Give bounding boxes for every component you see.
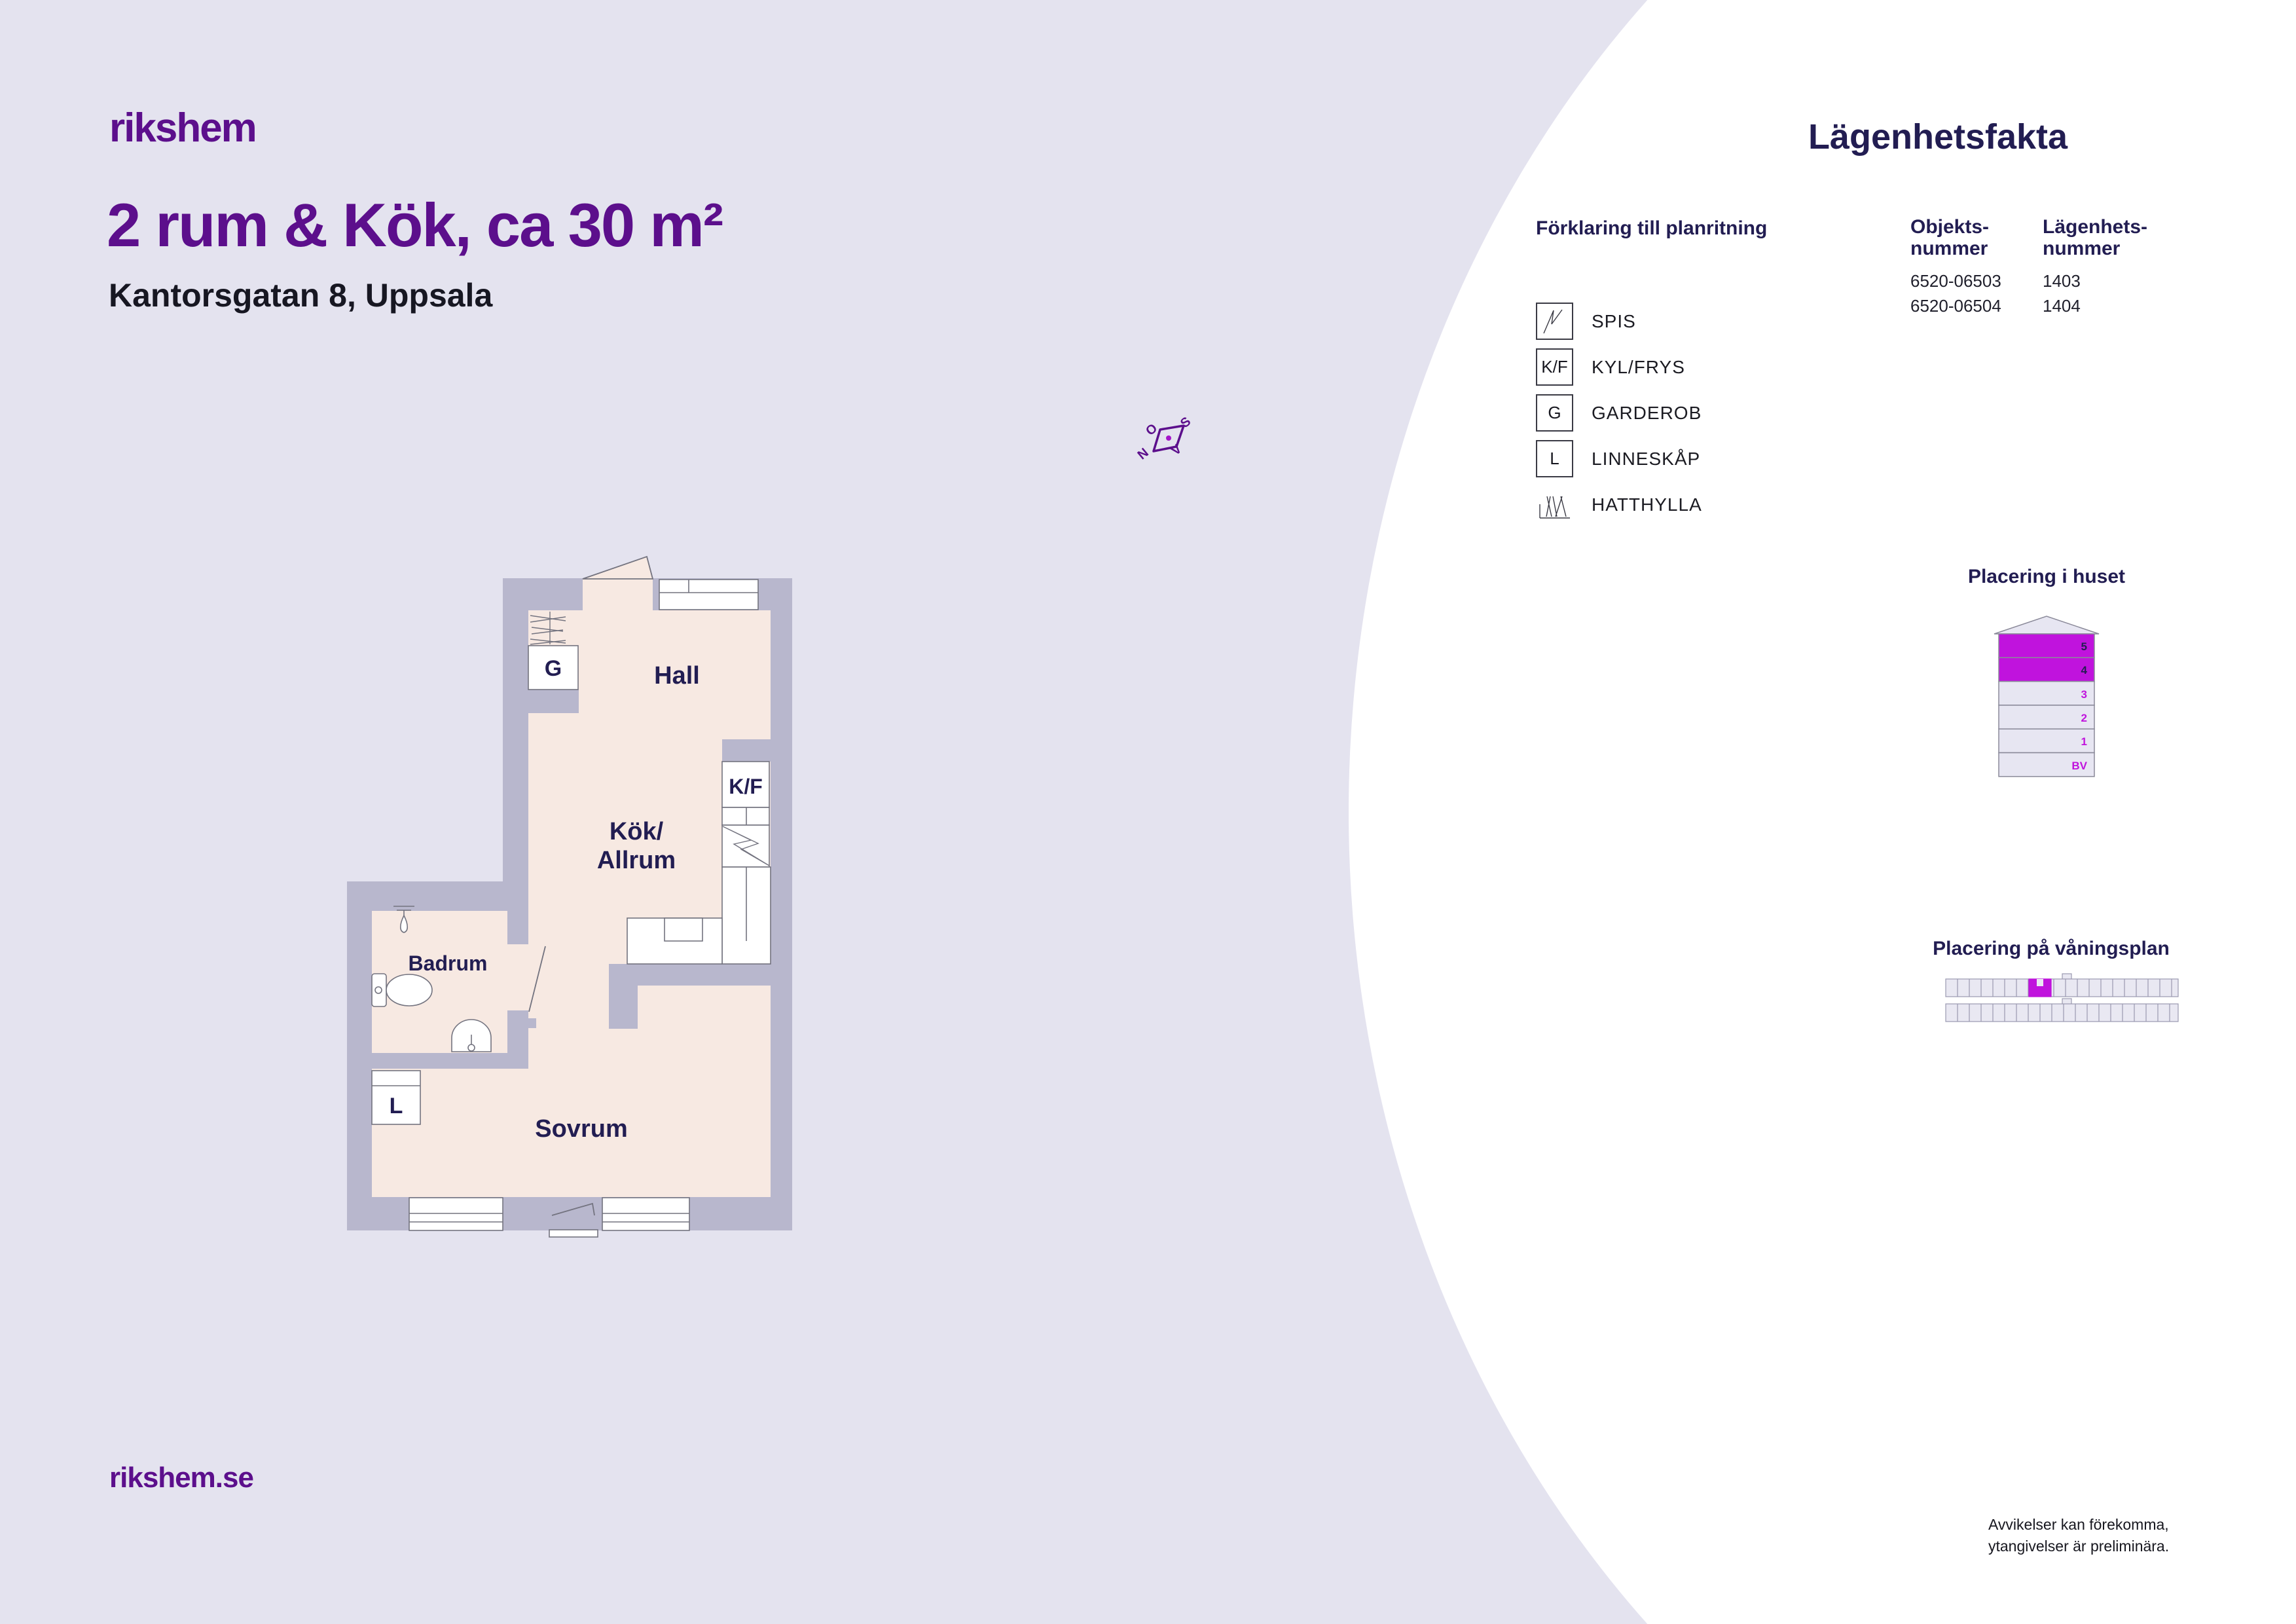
floor-label-3: 3 bbox=[2081, 688, 2087, 701]
floor-label-2: 2 bbox=[2081, 712, 2087, 724]
room-label-sovrum: Sovrum bbox=[535, 1115, 627, 1143]
room-label-kok-2: Allrum bbox=[597, 847, 676, 874]
column-header-lagenhetsnummer: Lägenhets- nummer bbox=[2043, 216, 2147, 259]
legend-heading: Förklaring till planritning bbox=[1536, 217, 1767, 240]
facts-heading: Lägenhetsfakta bbox=[1741, 117, 2134, 157]
compass-s: S bbox=[1178, 415, 1194, 431]
address: Kantorsgatan 8, Uppsala bbox=[109, 276, 492, 314]
sink-icon bbox=[452, 1020, 491, 1052]
room-label-badrum: Badrum bbox=[409, 951, 488, 975]
strip-level-other bbox=[1946, 1004, 2178, 1022]
column-header-line: Objekts- bbox=[1910, 216, 1989, 238]
marker-kylfrys: K/F bbox=[729, 775, 763, 798]
compass-icon: N O S V bbox=[1135, 415, 1194, 463]
garderob-legend-icon: G bbox=[1536, 394, 1573, 432]
legend-row-linneskap: L LINNESKÅP bbox=[1536, 440, 1702, 477]
strip-level-current bbox=[1946, 979, 2178, 997]
disclaimer: Avvikelser kan förekomma, ytangivelser ä… bbox=[1988, 1514, 2169, 1557]
objektsnummer-value: 6520-06503 bbox=[1910, 271, 2001, 291]
marker-linneskap: L bbox=[390, 1094, 403, 1118]
building-diagram: 5 4 3 2 1 BV bbox=[1994, 616, 2099, 777]
placering-huset-heading: Placering i huset bbox=[1929, 566, 2164, 588]
column-header-line: nummer bbox=[2043, 238, 2147, 259]
legend-label: SPIS bbox=[1592, 311, 1636, 332]
legend-label: KYL/FRYS bbox=[1592, 357, 1685, 378]
legend-row-garderob: G GARDEROB bbox=[1536, 394, 1702, 432]
kylfrys-legend-icon: K/F bbox=[1536, 348, 1573, 386]
lagenhetsnummer-value: 1404 bbox=[2043, 296, 2081, 316]
door-leaf-top bbox=[583, 557, 653, 579]
page: Hall Kök/ Allrum Badrum Sovrum G K/F L N… bbox=[0, 0, 2296, 1624]
floor-label-bv: BV bbox=[2071, 760, 2087, 772]
room-label-hall: Hall bbox=[654, 662, 700, 690]
floor-label-5: 5 bbox=[2081, 640, 2087, 653]
legend-label: GARDEROB bbox=[1592, 403, 1702, 424]
highlighted-unit bbox=[2029, 979, 2051, 997]
legend: SPIS K/F KYL/FRYS G GARDEROB L LINNESKÅP… bbox=[1536, 303, 1702, 532]
brand-logo: rikshem bbox=[109, 105, 256, 151]
linneskap-legend-icon: L bbox=[1536, 440, 1573, 477]
building-roof bbox=[1994, 616, 2099, 634]
floor-label-1: 1 bbox=[2081, 735, 2087, 748]
compass-v: V bbox=[1169, 441, 1185, 458]
column-header-line: nummer bbox=[1910, 238, 1989, 259]
compass-n: N bbox=[1135, 445, 1152, 462]
placering-plan-heading: Placering på våningsplan bbox=[1901, 938, 2202, 960]
marker-garderob: G bbox=[545, 656, 562, 681]
hatthylla-legend-icon bbox=[1536, 486, 1573, 523]
page-title: 2 rum & Kök, ca 30 m² bbox=[107, 190, 722, 261]
objektsnummer-value: 6520-06504 bbox=[1910, 296, 2001, 316]
floor-level-strips bbox=[1946, 974, 2178, 1022]
legend-row-spis: SPIS bbox=[1536, 303, 1702, 340]
toilet-icon bbox=[372, 974, 432, 1006]
legend-row-hatthylla: HATTHYLLA bbox=[1536, 486, 1702, 523]
legend-row-kylfrys: K/F KYL/FRYS bbox=[1536, 348, 1702, 386]
website-link: rikshem.se bbox=[109, 1462, 253, 1494]
floor-plan: Hall Kök/ Allrum Badrum Sovrum G K/F L bbox=[347, 557, 792, 1237]
legend-label: HATTHYLLA bbox=[1592, 494, 1702, 515]
legend-label: LINNESKÅP bbox=[1592, 449, 1700, 470]
room-label-kok-1: Kök/ bbox=[610, 818, 664, 845]
disclaimer-line: ytangivelser är preliminära. bbox=[1988, 1536, 2169, 1557]
column-header-line: Lägenhets- bbox=[2043, 216, 2147, 238]
lagenhetsnummer-value: 1403 bbox=[2043, 271, 2081, 291]
floor-label-4: 4 bbox=[2081, 664, 2088, 676]
column-header-objektsnummer: Objekts- nummer bbox=[1910, 216, 1989, 259]
disclaimer-line: Avvikelser kan förekomma, bbox=[1988, 1514, 2169, 1536]
spis-legend-icon bbox=[1536, 303, 1573, 340]
